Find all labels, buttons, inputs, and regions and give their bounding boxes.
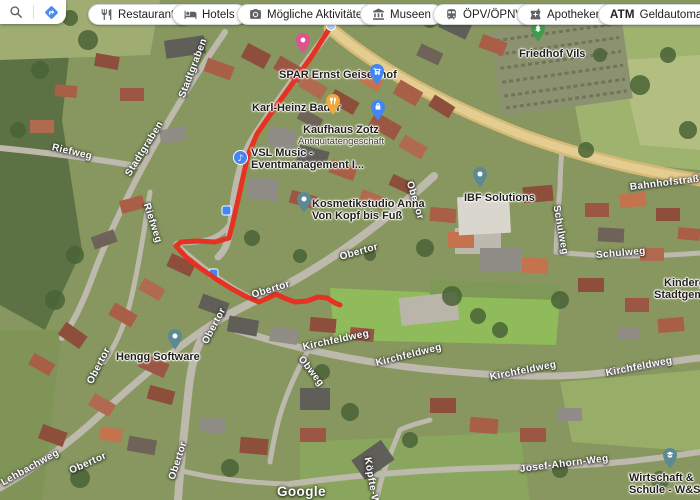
music-note-icon: ♪ — [238, 154, 244, 164]
filter-button-atms[interactable]: ATM Geldautomaten — [598, 4, 700, 25]
poi-sublabel-kaufhaus: Antiquitätengeschäft — [298, 136, 384, 147]
poi-label-hengg[interactable]: Hengg Software — [116, 351, 200, 363]
atm-icon: ATM — [610, 9, 635, 21]
pharmacy-icon — [529, 8, 542, 21]
hengg-pin[interactable] — [168, 329, 182, 351]
poi-label-kindergarten[interactable]: Kindergarten Stadtgemeinde — [664, 277, 700, 301]
poi-label-friedhof[interactable]: Friedhof Vils — [519, 48, 585, 60]
ibf-pin[interactable] — [473, 167, 487, 189]
google-watermark: Google — [277, 484, 326, 499]
poi-label-vsl[interactable]: VSL Music - Eventmanagement I... — [251, 147, 364, 171]
generic-poi-icon — [302, 197, 307, 202]
generic-poi-icon — [478, 172, 483, 177]
cemetery-area — [490, 13, 633, 117]
bader-pin[interactable] — [326, 94, 340, 116]
search-panel — [0, 0, 66, 24]
museum-icon — [372, 8, 385, 21]
divider — [33, 5, 34, 19]
poi-label-schule[interactable]: Wirtschaft & Schule - W&S — [629, 472, 700, 496]
kosmetik-pin[interactable] — [297, 192, 311, 214]
camera-icon — [249, 8, 262, 21]
hotel-icon — [184, 8, 197, 21]
filter-button-hotels[interactable]: Hotels — [172, 4, 247, 25]
poi-label-ibf[interactable]: IBF Solutions — [464, 192, 535, 204]
schule-pin[interactable] — [663, 448, 677, 470]
filter-button-museums[interactable]: Museen — [360, 4, 443, 25]
restaurant-icon — [100, 8, 113, 21]
map-view: Riefweg Riefweg Stadtgraben Stadtgraben … — [0, 0, 700, 500]
spar-pin[interactable] — [370, 64, 384, 86]
poi-label-kaufhaus[interactable]: Kaufhaus Zotz Antiquitätengeschäft — [303, 124, 384, 147]
transit-stop-marker[interactable] — [222, 206, 231, 215]
vsl-pin[interactable]: ♪ — [233, 150, 248, 165]
poi-label-kosmetik[interactable]: Kosmetikstudio Anna Von Kopf bis Fuß — [312, 198, 425, 222]
search-icon[interactable] — [9, 5, 23, 19]
directions-icon[interactable] — [43, 4, 60, 21]
transit-icon — [445, 8, 458, 21]
kaufhaus-pin[interactable] — [371, 100, 385, 122]
generic-poi-icon — [173, 334, 178, 339]
